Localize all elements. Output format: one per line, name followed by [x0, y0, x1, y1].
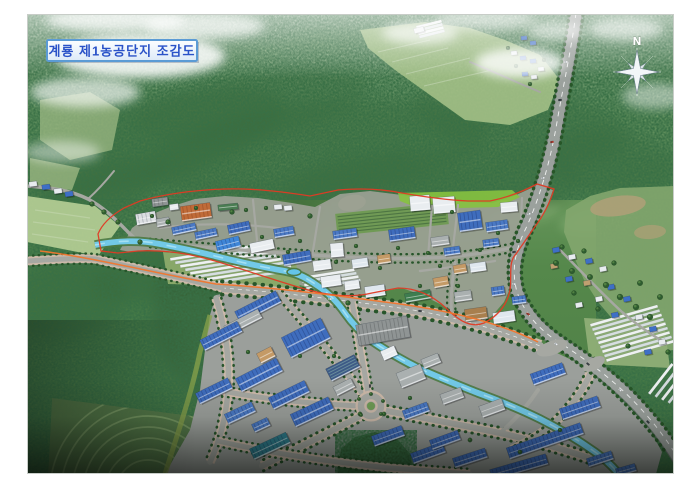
tree-highlight — [618, 295, 621, 298]
factory-building — [491, 285, 507, 297]
tree-highlight — [457, 285, 459, 287]
factory-building — [500, 201, 519, 214]
car — [512, 283, 516, 285]
tree-highlight — [116, 220, 118, 222]
greenhouse-strip — [674, 375, 700, 407]
tree-highlight — [588, 275, 591, 278]
tree-highlight — [90, 202, 92, 204]
car — [328, 298, 332, 300]
greenhouse-strip — [681, 378, 700, 410]
tree-highlight — [529, 83, 531, 85]
left-vignette — [27, 320, 197, 474]
tree-highlight — [596, 307, 598, 309]
title-box: 계룡 제1농공단지 조감도 — [47, 40, 199, 63]
tree-highlight — [451, 211, 453, 213]
tree-highlight — [572, 291, 574, 293]
tree-highlight — [247, 351, 249, 353]
tree-highlight — [560, 245, 562, 247]
car — [418, 310, 422, 312]
tree-highlight — [419, 285, 421, 287]
factory-building — [330, 242, 345, 259]
cloud — [528, 22, 584, 40]
tree-highlight — [658, 295, 661, 298]
tree-highlight — [299, 240, 301, 242]
page-title: 계룡 제1농공단지 조감도 — [48, 44, 195, 59]
cloud — [45, 8, 185, 32]
car — [558, 99, 562, 101]
tree-highlight — [195, 207, 197, 209]
tree-highlight — [299, 355, 301, 357]
cloud — [24, 141, 100, 163]
cloud — [30, 77, 140, 107]
compass-label: N — [632, 35, 641, 48]
tree-highlight — [626, 344, 628, 346]
tree-highlight — [333, 355, 335, 357]
tree-highlight — [379, 267, 381, 269]
factory-building — [457, 210, 484, 234]
tree-highlight — [397, 247, 399, 249]
tree-highlight — [138, 240, 140, 242]
tree-highlight — [151, 215, 153, 217]
tree-highlight — [582, 249, 584, 251]
tree-highlight — [355, 245, 357, 247]
tree-highlight — [554, 261, 557, 264]
tree-highlight — [166, 220, 168, 222]
tree-highlight — [427, 252, 429, 254]
tree-highlight — [245, 209, 247, 211]
tree-highlight — [308, 214, 310, 216]
cloud — [475, 48, 565, 78]
tree-highlight — [309, 295, 311, 297]
tree-highlight — [439, 265, 441, 267]
cloud — [622, 83, 688, 109]
tree-highlight — [517, 240, 519, 242]
tree-highlight — [648, 315, 651, 318]
birdseye-rendering: 계룡 제1농공단지 조감도 N — [0, 0, 700, 494]
factory-building — [377, 253, 393, 265]
tree-highlight — [497, 232, 499, 234]
tree-highlight — [612, 261, 614, 263]
tree-highlight — [230, 210, 232, 212]
tree-highlight — [604, 283, 607, 286]
tree-highlight — [666, 350, 668, 352]
tree-highlight — [479, 249, 481, 251]
tree-highlight — [634, 305, 637, 308]
tree-highlight — [638, 281, 641, 284]
scene-svg: 계룡 제1농공단지 조감도 N — [0, 0, 700, 494]
tree-highlight — [261, 236, 263, 238]
tree-highlight — [287, 251, 289, 253]
pond — [287, 269, 301, 276]
tree-highlight — [570, 269, 573, 272]
cloud — [435, 10, 535, 30]
cloud — [587, 18, 663, 40]
tree-highlight — [335, 261, 337, 263]
tree-highlight — [346, 301, 348, 303]
tree-highlight — [102, 210, 104, 212]
tree-highlight — [265, 207, 267, 209]
